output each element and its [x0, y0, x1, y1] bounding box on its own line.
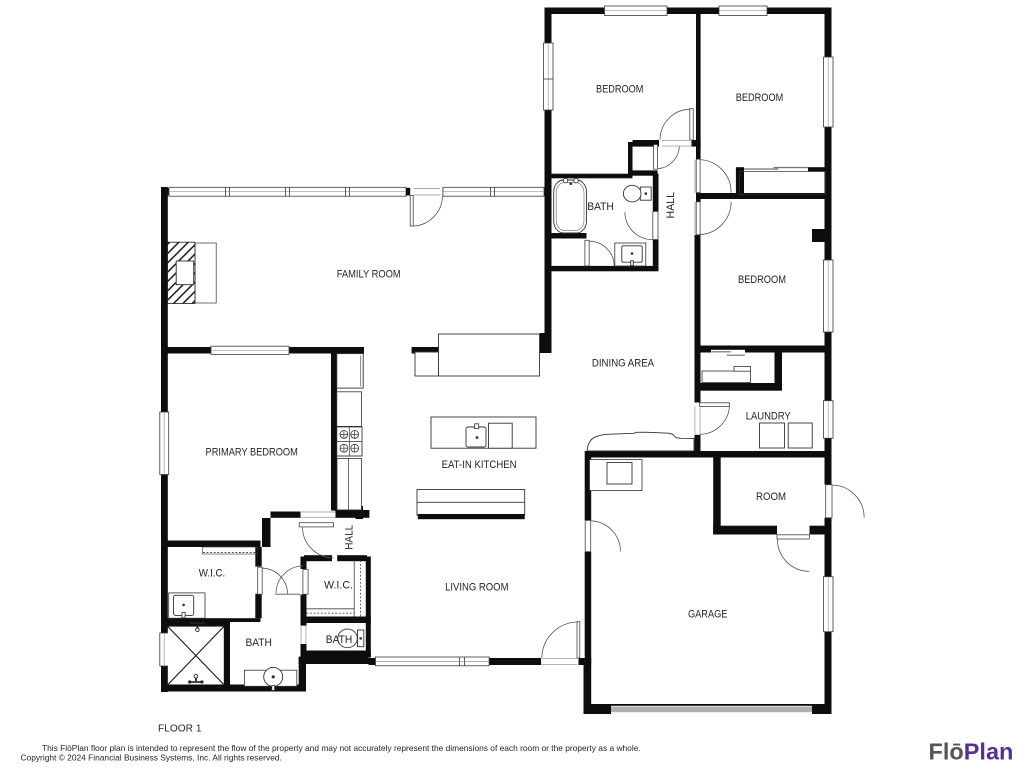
svg-text:LAUNDRY: LAUNDRY — [746, 410, 791, 422]
svg-text:W.I.C.: W.I.C. — [199, 568, 226, 580]
svg-text:LIVING ROOM: LIVING ROOM — [445, 582, 508, 594]
svg-text:FLOOR 1: FLOOR 1 — [158, 723, 202, 735]
svg-text:FAMILY ROOM: FAMILY ROOM — [337, 269, 401, 281]
svg-text:This FlōPlan floor plan is int: This FlōPlan floor plan is intended to r… — [42, 743, 641, 753]
svg-text:HALL: HALL — [665, 192, 677, 219]
svg-text:BATH: BATH — [245, 637, 272, 649]
svg-text:HALL: HALL — [344, 525, 356, 550]
svg-text:W.I.C.: W.I.C. — [324, 580, 353, 592]
svg-text:DINING AREA: DINING AREA — [592, 357, 655, 369]
svg-text:BATH: BATH — [587, 201, 614, 213]
svg-text:Copyright © 2024 Financial Bus: Copyright © 2024 Financial Business Syst… — [21, 752, 282, 762]
svg-text:FlōPlan: FlōPlan — [929, 738, 1014, 764]
svg-text:BEDROOM: BEDROOM — [738, 274, 786, 286]
svg-text:EAT-IN KITCHEN: EAT-IN KITCHEN — [442, 459, 517, 471]
svg-text:BATH: BATH — [326, 634, 353, 646]
svg-text:PRIMARY BEDROOM: PRIMARY BEDROOM — [206, 447, 298, 459]
svg-text:BEDROOM: BEDROOM — [596, 84, 644, 96]
svg-text:ROOM: ROOM — [756, 491, 786, 503]
svg-text:GARAGE: GARAGE — [688, 609, 727, 621]
svg-text:BEDROOM: BEDROOM — [736, 92, 784, 104]
